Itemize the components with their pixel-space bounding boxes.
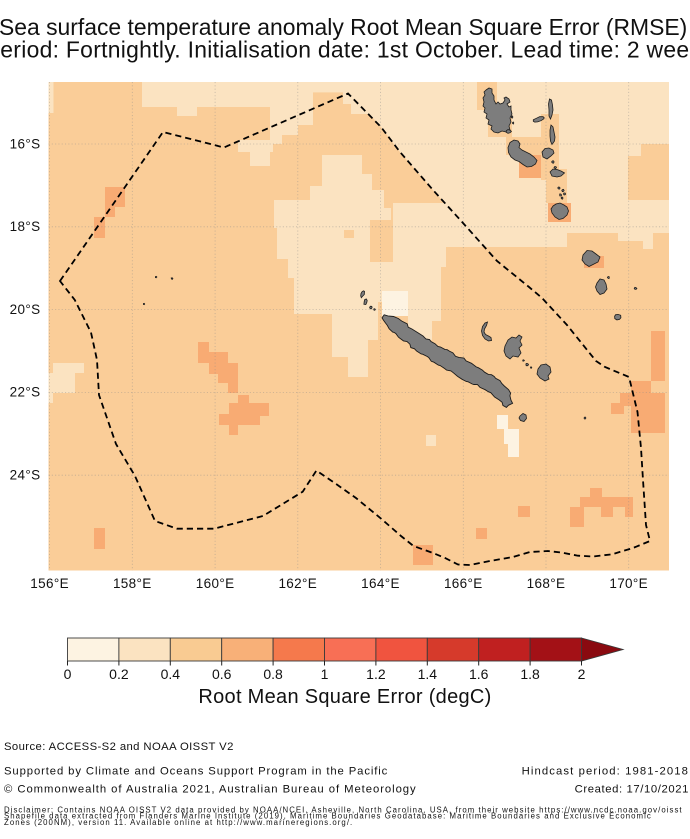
svg-text:1.8: 1.8: [520, 666, 540, 682]
svg-text:166°E: 166°E: [444, 576, 483, 591]
svg-text:164°E: 164°E: [361, 576, 400, 591]
svg-text:0.4: 0.4: [161, 666, 181, 682]
svg-text:24°S: 24°S: [10, 468, 41, 483]
svg-text:160°E: 160°E: [196, 576, 235, 591]
svg-text:1.4: 1.4: [418, 666, 438, 682]
svg-text:Source: ACCESS-S2 and NOAA OIS: Source: ACCESS-S2 and NOAA OISST V2: [4, 741, 234, 753]
svg-text:16°S: 16°S: [10, 136, 41, 151]
svg-text:Hindcast period: 1981-2018: Hindcast period: 1981-2018: [522, 766, 689, 778]
svg-text:168°E: 168°E: [527, 576, 566, 591]
svg-text:Root Mean Square Error (degC): Root Mean Square Error (degC): [198, 686, 491, 708]
svg-text:1.2: 1.2: [366, 666, 386, 682]
svg-text:22°S: 22°S: [10, 385, 41, 400]
svg-text:Created: 17/10/2021: Created: 17/10/2021: [575, 784, 689, 796]
svg-text:158°E: 158°E: [113, 576, 152, 591]
svg-text:156°E: 156°E: [30, 576, 69, 591]
svg-text:1.6: 1.6: [469, 666, 489, 682]
svg-text:2: 2: [578, 666, 586, 682]
svg-text:20°S: 20°S: [10, 302, 41, 317]
svg-text:0.6: 0.6: [212, 666, 232, 682]
svg-text:Zones (200NM), version 11. Ava: Zones (200NM), version 11. Available onl…: [4, 818, 353, 827]
svg-text:162°E: 162°E: [278, 576, 317, 591]
svg-text:0: 0: [64, 666, 72, 682]
svg-text:170°E: 170°E: [609, 576, 648, 591]
svg-text:18°S: 18°S: [10, 219, 41, 234]
svg-text:0.2: 0.2: [109, 666, 129, 682]
svg-text:Period: Fortnightly. Initialis: Period: Fortnightly. Initialisation date…: [0, 37, 690, 63]
svg-text:© Commonwealth of Australia 20: © Commonwealth of Australia 2021, Austra…: [4, 784, 417, 796]
svg-text:0.8: 0.8: [263, 666, 283, 682]
svg-text:Supported by Climate and Ocean: Supported by Climate and Oceans Support …: [4, 766, 388, 778]
svg-text:1: 1: [321, 666, 329, 682]
